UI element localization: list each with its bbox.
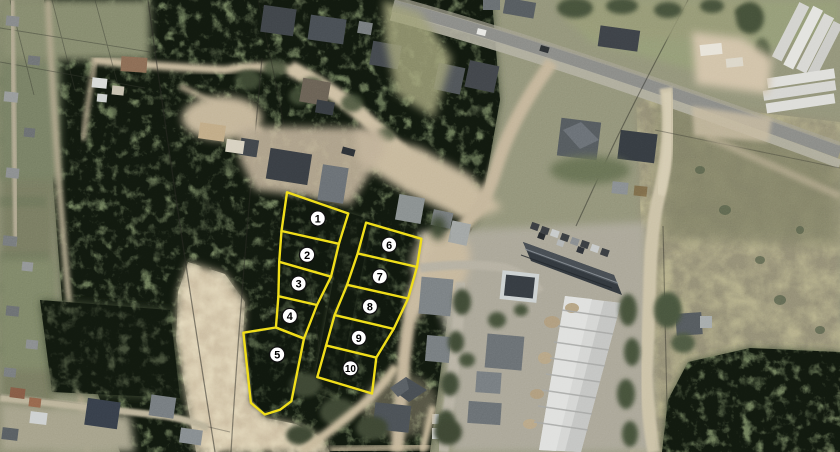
- svg-text:2: 2: [304, 250, 310, 262]
- svg-text:7: 7: [377, 272, 383, 284]
- svg-text:8: 8: [367, 302, 373, 314]
- svg-text:3: 3: [296, 279, 302, 291]
- svg-text:10: 10: [345, 364, 357, 375]
- svg-text:5: 5: [274, 350, 280, 362]
- svg-text:6: 6: [386, 240, 392, 252]
- svg-text:1: 1: [315, 214, 321, 226]
- svg-text:9: 9: [356, 333, 362, 345]
- svg-text:4: 4: [287, 311, 293, 323]
